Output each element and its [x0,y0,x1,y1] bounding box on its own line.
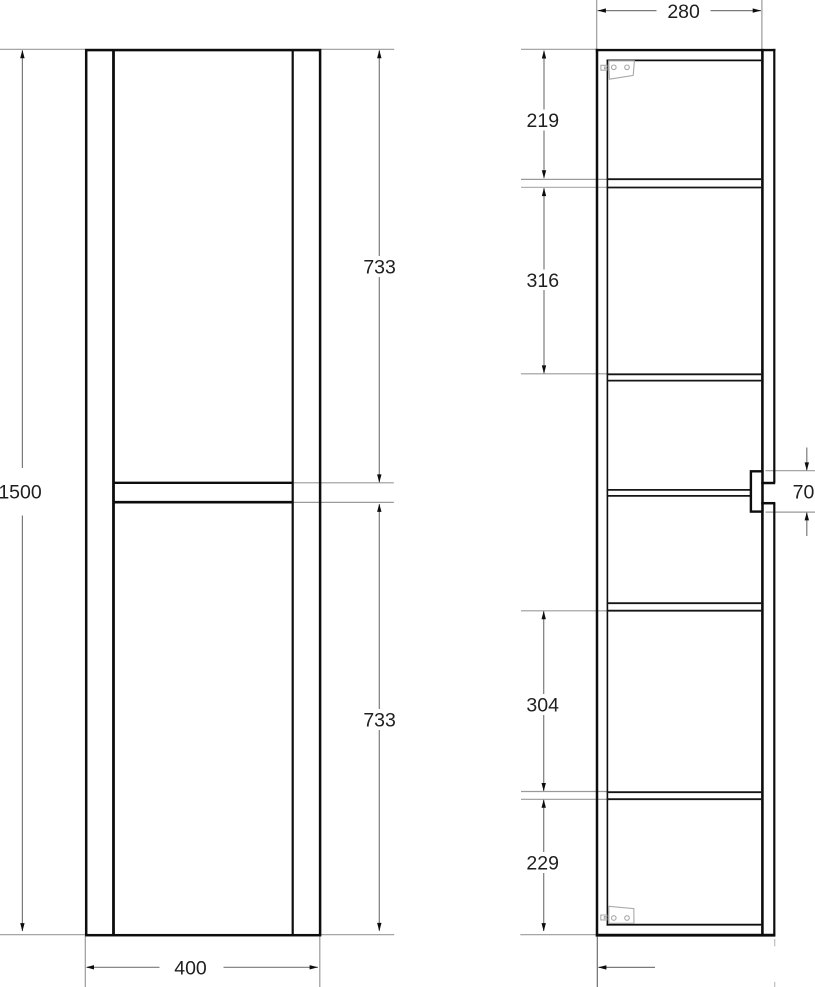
svg-text:219: 219 [527,110,560,132]
svg-text:229: 229 [526,853,559,875]
svg-text:733: 733 [363,710,396,732]
svg-text:304: 304 [526,695,559,717]
svg-text:733: 733 [363,256,396,278]
svg-text:316: 316 [527,270,560,292]
svg-text:70: 70 [793,482,815,504]
svg-text:280: 280 [667,1,700,23]
svg-text:400: 400 [174,958,207,980]
svg-text:1500: 1500 [0,482,42,504]
